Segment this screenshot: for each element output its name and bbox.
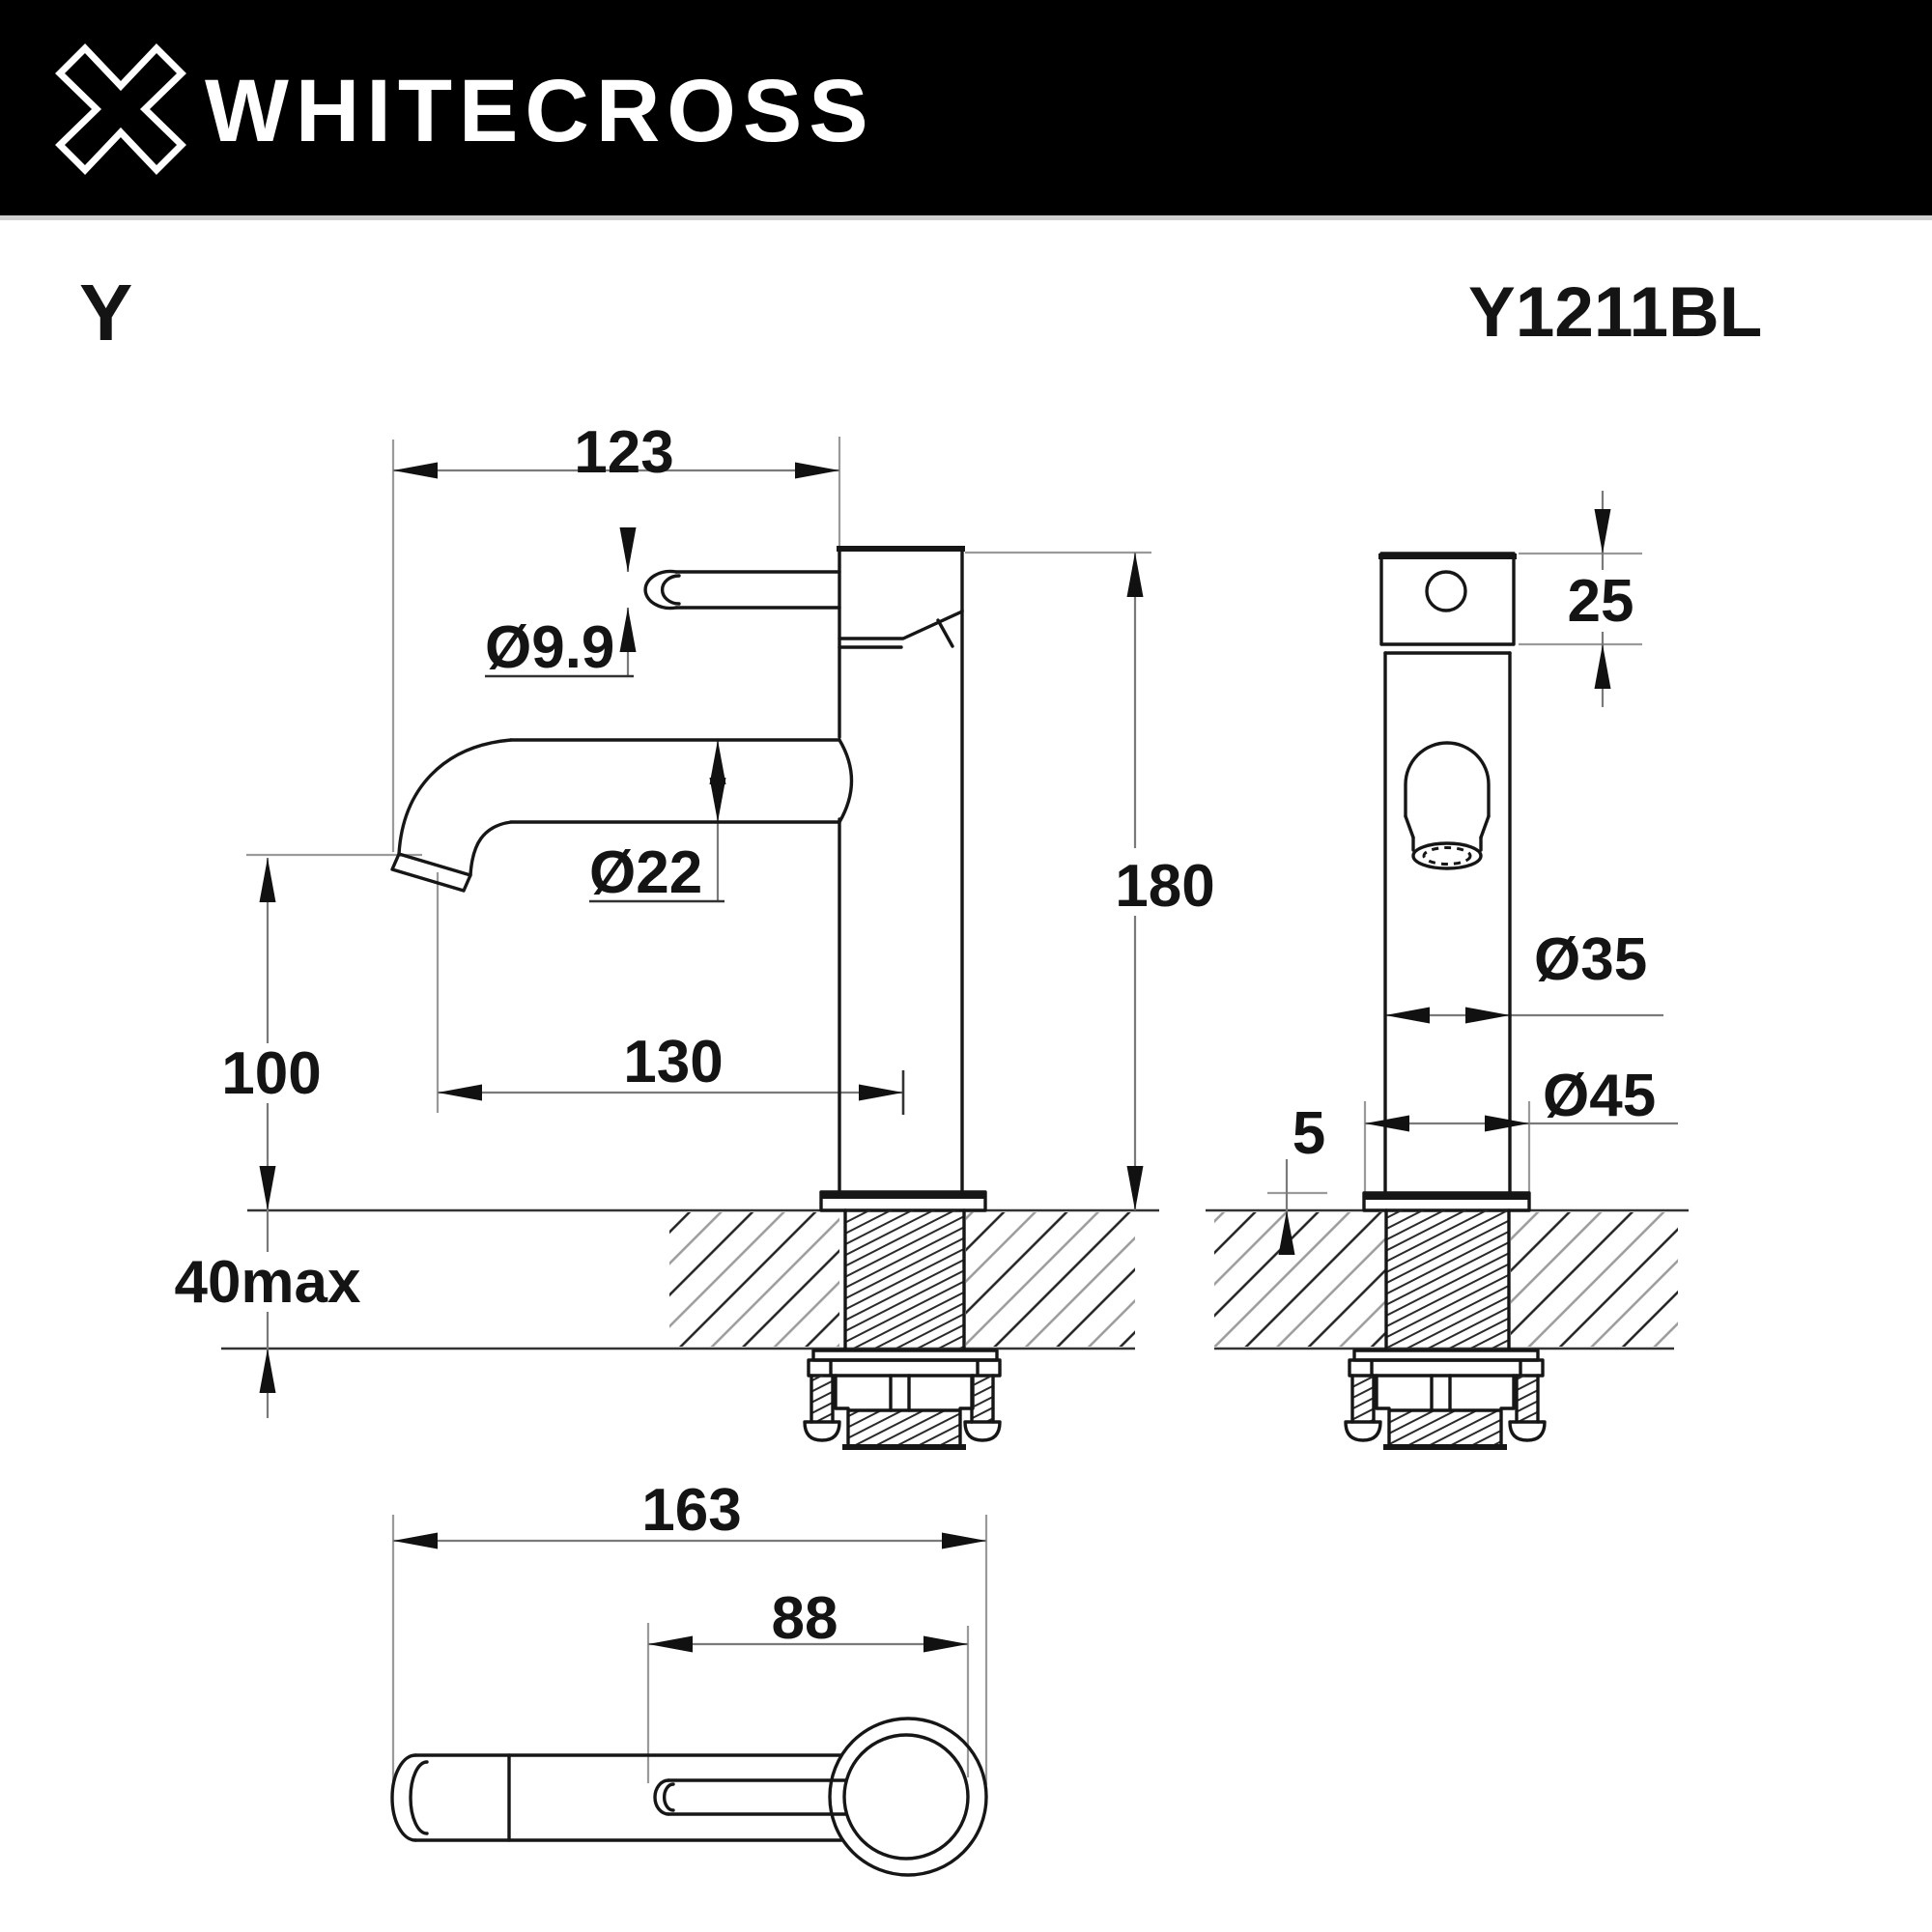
dim-flange-dia: Ø45 [1543,1063,1656,1129]
model-code: Y1211BL [1468,273,1762,352]
header: WHITECROSS [0,0,1932,220]
series-label: Y [79,268,132,357]
dim-spout-reach: 123 [574,419,673,486]
handle-pin-hole [1427,572,1465,611]
dim-overall-length: 163 [641,1477,741,1544]
brand-text: WHITECROSS [205,62,875,160]
body-column [839,611,962,1192]
top-handle [655,1780,846,1814]
dim-spout-dia: Ø22 [589,839,702,906]
top-body-circle [844,1735,968,1859]
handle-lever [645,572,839,609]
top-view [392,1719,986,1875]
drawing-sheet: WHITECROSS Y Y1211BL [0,0,1932,1932]
arrowheads [260,463,1611,1653]
header-divider [0,215,1932,220]
dim-flange-lip: 5 [1293,1100,1325,1167]
dim-outlet-height: 100 [221,1040,321,1107]
side-body-column [1385,653,1510,1193]
top-body-flange-circle [830,1719,986,1875]
dim-handle-length: 88 [772,1585,838,1652]
base-flange [821,1192,985,1210]
dim-center-reach: 130 [623,1029,723,1095]
dim-total-height: 180 [1115,853,1214,920]
spout-nozzle-front [1406,743,1489,868]
side-base-flange [1364,1193,1529,1210]
top-spout [392,1755,841,1840]
technical-drawing: WHITECROSS Y Y1211BL [0,0,1932,1932]
aerator [1424,848,1470,865]
dim-handle-dia: Ø9.9 [485,614,614,681]
handle-head [1378,554,1517,653]
dim-body-dia: Ø35 [1534,926,1647,993]
dim-head-height: 25 [1568,568,1634,635]
body-cap [837,549,965,737]
dim-deck-max: 40max [174,1249,361,1316]
